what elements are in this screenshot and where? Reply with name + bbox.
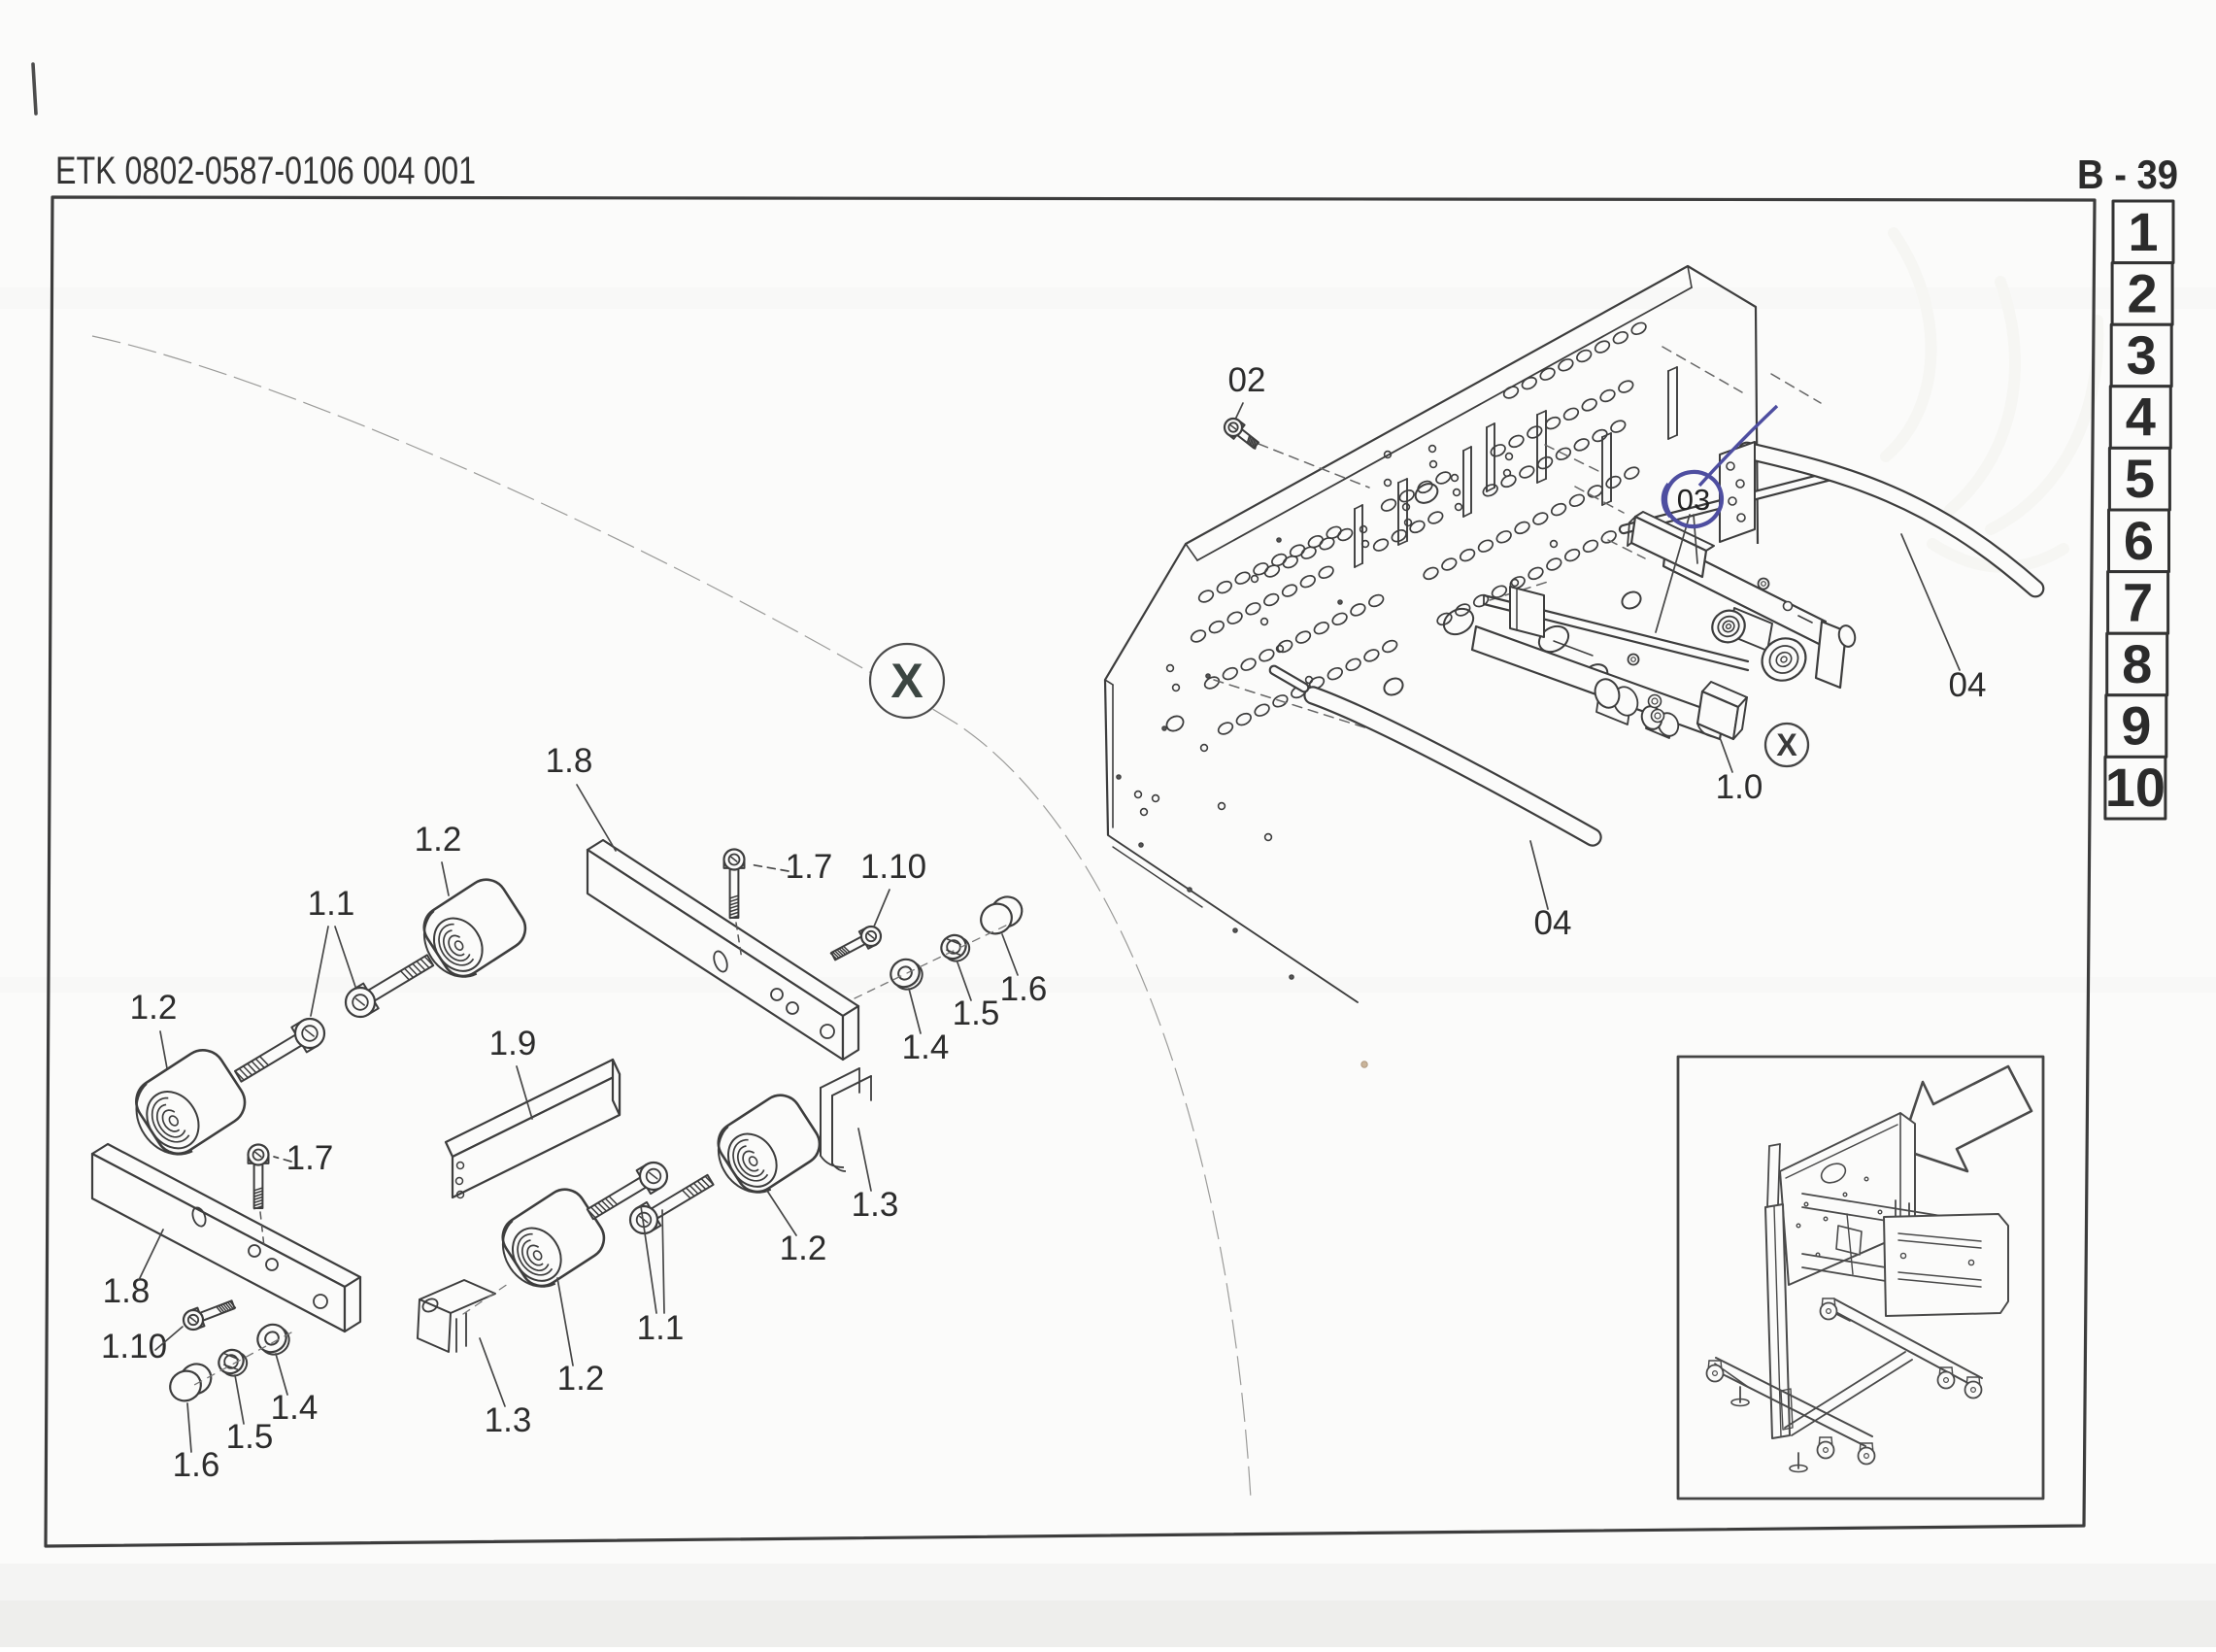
svg-text:04: 04 — [1534, 904, 1572, 942]
svg-text:1.2: 1.2 — [780, 1230, 827, 1267]
svg-text:10: 10 — [2105, 757, 2166, 818]
svg-text:1.2: 1.2 — [415, 821, 462, 859]
svg-text:1.9: 1.9 — [489, 1025, 537, 1062]
svg-text:ETK 0802-0587-0106 004 001: ETK 0802-0587-0106 004 001 — [55, 150, 476, 192]
svg-text:5: 5 — [2125, 448, 2155, 509]
svg-text:1.2: 1.2 — [557, 1360, 605, 1398]
svg-text:1.3: 1.3 — [485, 1401, 532, 1439]
svg-text:7: 7 — [2123, 571, 2153, 632]
svg-text:6: 6 — [2124, 510, 2154, 571]
svg-text:1.5: 1.5 — [226, 1418, 274, 1456]
svg-text:9: 9 — [2121, 695, 2151, 757]
svg-text:1.6: 1.6 — [1000, 970, 1048, 1008]
svg-text:3: 3 — [2127, 324, 2157, 386]
svg-text:1.3: 1.3 — [852, 1186, 899, 1224]
svg-text:1.1: 1.1 — [308, 885, 355, 923]
svg-text:1.0: 1.0 — [1716, 768, 1763, 806]
svg-text:8: 8 — [2122, 633, 2152, 694]
svg-text:1.4: 1.4 — [902, 1028, 950, 1066]
svg-text:1.4: 1.4 — [271, 1389, 319, 1427]
svg-text:1.1: 1.1 — [637, 1309, 685, 1347]
svg-text:1.10: 1.10 — [860, 848, 926, 886]
svg-text:1.7: 1.7 — [286, 1139, 334, 1177]
svg-text:1.7: 1.7 — [786, 848, 833, 886]
svg-text:02: 02 — [1228, 361, 1266, 399]
svg-text:1.8: 1.8 — [103, 1272, 151, 1310]
svg-text:X: X — [890, 654, 923, 708]
svg-text:X: X — [1776, 727, 1797, 762]
svg-text:2: 2 — [2128, 262, 2158, 323]
svg-text:1.5: 1.5 — [953, 995, 1000, 1032]
svg-text:1: 1 — [2128, 201, 2158, 262]
svg-text:1.6: 1.6 — [173, 1446, 220, 1484]
svg-text:1.10: 1.10 — [101, 1328, 167, 1365]
svg-text:B - 39: B - 39 — [2077, 152, 2178, 197]
svg-text:4: 4 — [2126, 387, 2156, 448]
svg-text:1.8: 1.8 — [546, 742, 593, 780]
svg-text:1.2: 1.2 — [130, 989, 178, 1027]
svg-text:03: 03 — [1677, 483, 1710, 517]
svg-text:04: 04 — [1949, 666, 1987, 704]
